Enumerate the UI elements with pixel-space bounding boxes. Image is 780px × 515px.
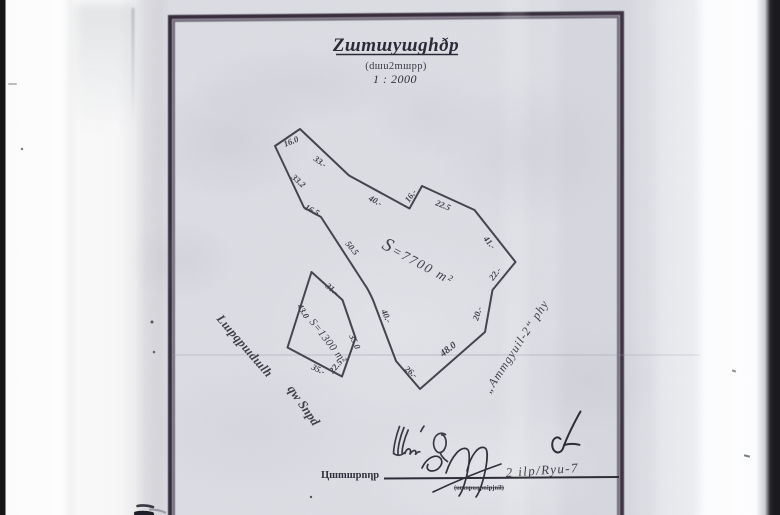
svg-text:1 : 2000: 1 : 2000 bbox=[373, 72, 417, 86]
svg-text:(dшu2mшpp): (dшu2mшpp) bbox=[365, 61, 427, 72]
svg-text:Цшmшpnηp: Цшmшpnηp bbox=[321, 470, 379, 481]
svg-text:Zшmшyшghðp: Zшmшyшghðp bbox=[332, 35, 459, 56]
